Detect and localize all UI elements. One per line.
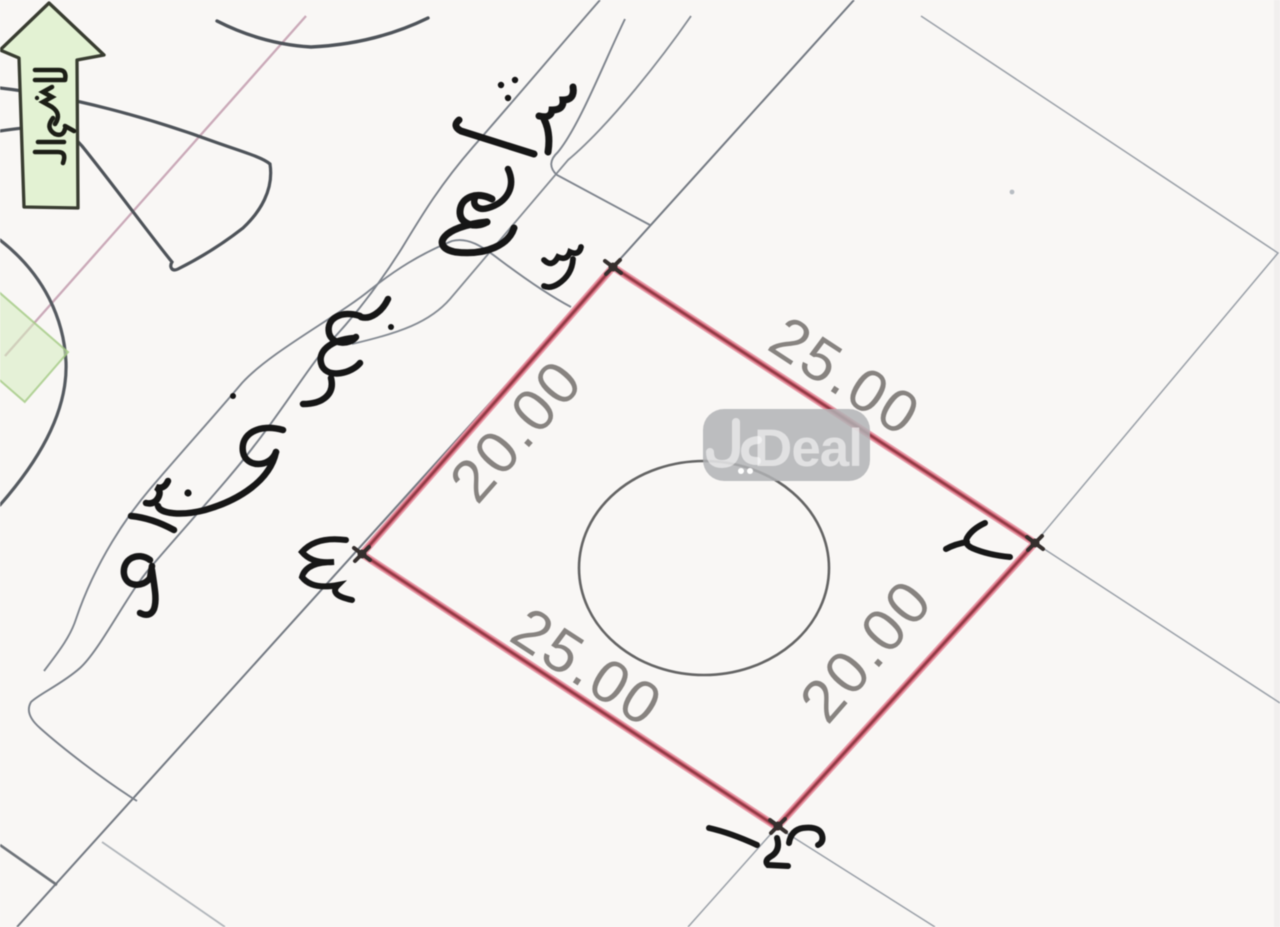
svg-text:Deal: Deal <box>754 419 862 478</box>
